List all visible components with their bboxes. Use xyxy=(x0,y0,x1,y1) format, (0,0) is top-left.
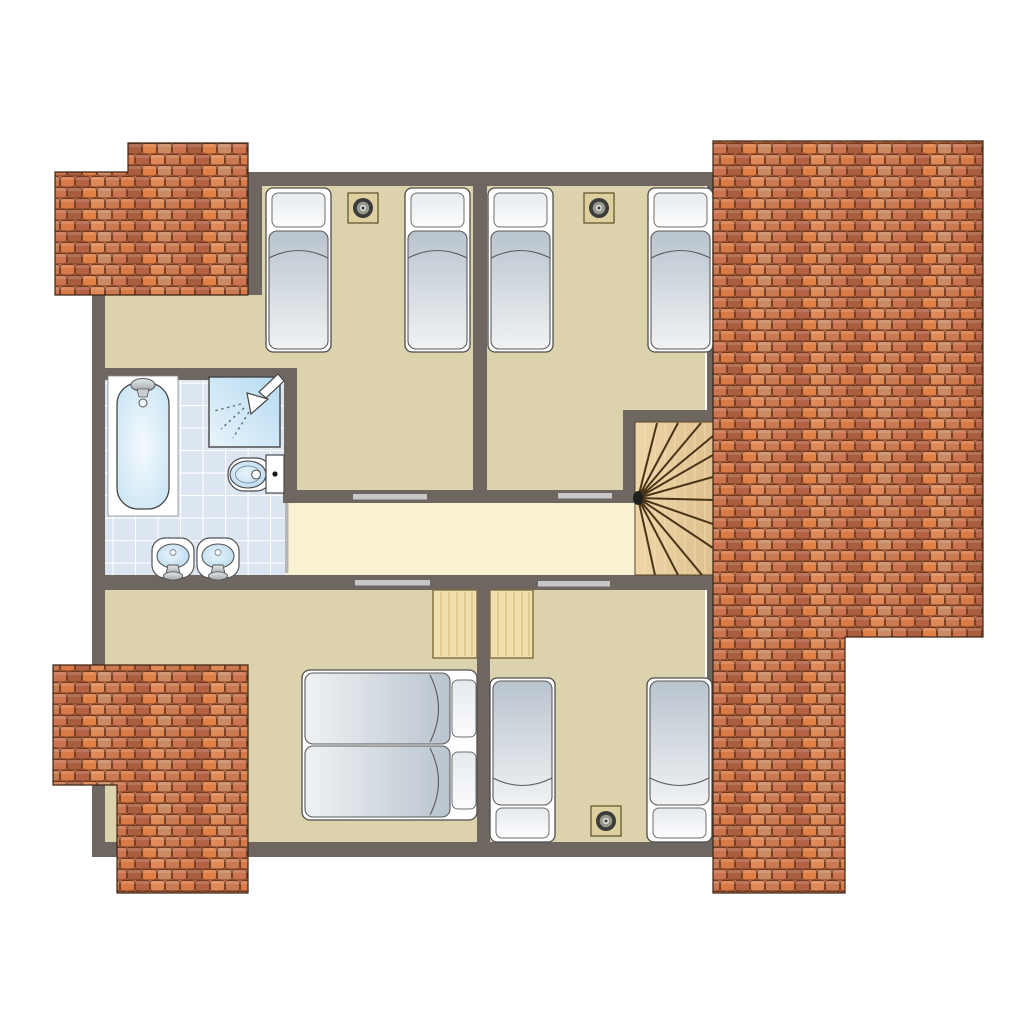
shower xyxy=(209,374,284,447)
bathtub-drain xyxy=(139,399,147,407)
toilet-flush-button xyxy=(272,471,277,476)
pillow xyxy=(272,193,325,227)
single-bed xyxy=(647,678,712,842)
mattress xyxy=(305,746,450,817)
toilet xyxy=(228,455,284,493)
toilet-drain xyxy=(252,470,261,479)
mattress xyxy=(408,231,467,349)
washbasin-faucet-base xyxy=(209,572,228,580)
single-bed xyxy=(490,678,555,842)
door-bedroom-bottom-left xyxy=(355,580,430,586)
mattress xyxy=(650,681,709,805)
pillow xyxy=(654,193,707,227)
ceiling-spotlight-icon xyxy=(591,806,621,836)
single-bed xyxy=(266,188,331,352)
roof-section-top-left xyxy=(55,143,248,295)
pillow xyxy=(452,752,476,809)
wall-bedroom-divider-bottom xyxy=(477,590,490,842)
washbasin-faucet-base xyxy=(164,572,183,580)
stair-newel-post xyxy=(633,491,643,505)
washbasin-left xyxy=(152,538,194,580)
washbasin-right xyxy=(197,538,239,580)
pillow xyxy=(452,680,476,737)
roof-section-bottom-left xyxy=(53,665,248,893)
single-bed xyxy=(405,188,470,352)
ceiling-spotlight-icon xyxy=(584,193,614,223)
mattress xyxy=(651,231,710,349)
mattress xyxy=(493,681,552,805)
pillow xyxy=(653,808,706,838)
washbasin-bowl xyxy=(202,544,234,568)
washbasin-drain xyxy=(170,550,176,556)
door-bedroom-top-left xyxy=(353,494,427,500)
washbasin-drain xyxy=(215,550,221,556)
wall-stair-top xyxy=(623,410,718,422)
winder-staircase xyxy=(633,422,713,575)
single-bed xyxy=(648,188,713,352)
bathtub xyxy=(108,376,178,516)
pillow xyxy=(494,193,547,227)
wall-bedroom-divider-top xyxy=(473,186,487,503)
mattress xyxy=(491,231,550,349)
floor-plan xyxy=(0,0,1024,1024)
pillow xyxy=(496,808,549,838)
desk xyxy=(490,590,533,658)
wall-stair-left xyxy=(623,410,635,503)
bathtub-spout xyxy=(137,389,149,397)
door-bedroom-top-right xyxy=(558,493,612,499)
ceiling-spotlight-icon xyxy=(348,193,378,223)
wall-knee-top-left xyxy=(248,186,262,295)
roof-section-right xyxy=(713,141,983,893)
mattress xyxy=(305,673,450,744)
door-bedroom-bottom-right xyxy=(538,581,610,587)
wall-bathroom-right xyxy=(284,368,297,503)
pillow xyxy=(411,193,464,227)
desk xyxy=(433,590,477,658)
door-bathroom xyxy=(285,503,289,573)
hallway-floor xyxy=(285,503,635,575)
washbasin-bowl xyxy=(157,544,189,568)
single-bed xyxy=(488,188,553,352)
mattress xyxy=(269,231,328,349)
double-bed xyxy=(302,670,477,820)
